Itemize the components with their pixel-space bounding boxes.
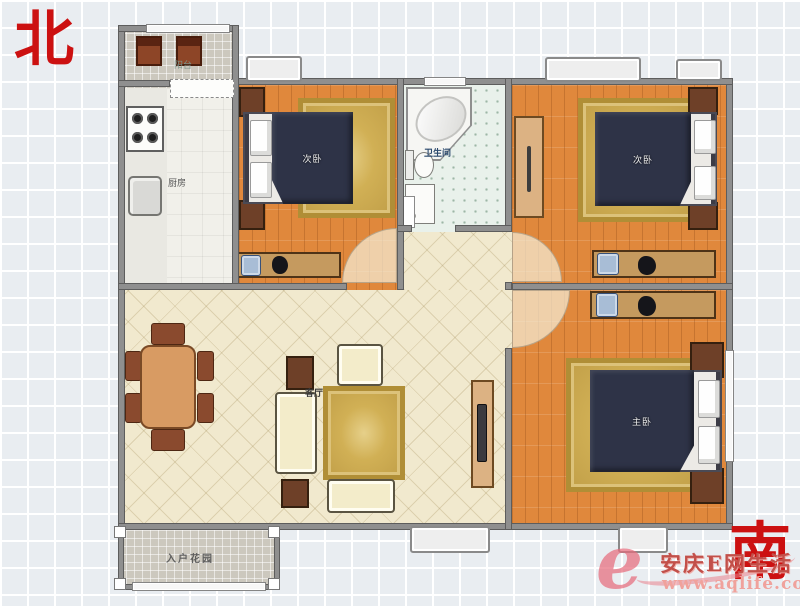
bed-pillow	[250, 120, 272, 156]
kitchen-sink	[128, 176, 162, 216]
garden-post	[268, 526, 280, 538]
floorplan-page: { "compass": { "north": "北", "south": "南…	[0, 0, 800, 600]
bed-blanket: 主卧	[590, 370, 694, 472]
balcony-label: 阳台	[174, 58, 192, 71]
stove	[126, 106, 164, 152]
nightstand	[688, 202, 718, 230]
side-table	[286, 356, 314, 390]
window-garden	[132, 582, 266, 591]
bed-blanket: 次卧	[595, 112, 691, 206]
kitchen-label: 厨房	[168, 176, 186, 189]
garden-post	[114, 578, 126, 590]
sofa-three-seat	[275, 392, 317, 474]
bed-pillow	[250, 162, 272, 198]
dining-chair	[151, 323, 185, 345]
desk-chair	[596, 293, 618, 317]
wall-kitchen-living	[118, 283, 347, 290]
nightstand	[239, 200, 265, 230]
wall-bathroom-bottom-a	[397, 225, 412, 232]
bay-window-bedroom-north	[246, 56, 302, 82]
wall-bathroom-bedroom-east	[505, 78, 512, 232]
desk-monitor	[638, 296, 656, 316]
window-master-east	[725, 350, 734, 462]
dining-table	[140, 345, 196, 429]
wall-kitchen-bedroom	[232, 25, 239, 290]
wall-left-outer	[118, 25, 125, 530]
wall-top-outer	[232, 78, 733, 85]
stove-burner	[147, 132, 158, 143]
balcony-plant-pot	[136, 36, 162, 66]
wall-balcony-kitchen	[118, 80, 170, 87]
bay-window-living	[410, 526, 490, 553]
armchair	[337, 344, 383, 386]
master-bedroom-label: 主卧	[632, 415, 652, 428]
bedroom-east-label: 次卧	[633, 153, 653, 166]
living-room-label: 客厅	[305, 386, 323, 399]
wall-bedroom-bathroom	[397, 78, 404, 290]
dining-chair	[151, 429, 185, 451]
wall-bathroom-bottom-b	[455, 225, 512, 232]
bed-pillow	[694, 166, 716, 200]
desk-chair	[597, 253, 619, 275]
wardrobe-handle	[527, 146, 531, 192]
bed-pillow	[698, 426, 720, 464]
wall-living-master	[505, 348, 512, 530]
bed-pillow	[694, 120, 716, 154]
wall-hall-stub	[505, 282, 512, 290]
wall-bedrooms-divider	[512, 283, 733, 290]
side-table	[281, 479, 309, 508]
bedroom-north-label: 次卧	[302, 152, 322, 165]
wardrobe	[514, 116, 544, 218]
bed-headboard	[245, 114, 249, 202]
compass-north: 北	[14, 10, 74, 70]
window-balcony	[146, 24, 230, 33]
dining-chair	[197, 351, 214, 381]
bay-window-top-right	[676, 59, 722, 81]
desk-monitor	[638, 256, 656, 275]
hallway-floor	[404, 232, 512, 290]
desk-monitor	[272, 256, 288, 274]
stove-burner	[147, 113, 158, 124]
garden-post	[268, 578, 280, 590]
toilet-tank	[405, 150, 414, 180]
nightstand	[690, 468, 724, 504]
stove-burner	[132, 113, 143, 124]
watermark-url: www.aqlife.com	[662, 574, 800, 594]
living-rug	[323, 386, 405, 480]
tv	[477, 404, 487, 462]
bed-bedroom-east: 次卧	[595, 112, 717, 206]
bay-window-bedroom-east	[545, 57, 641, 82]
garden-post	[114, 526, 126, 538]
stove-burner	[132, 132, 143, 143]
nightstand	[688, 87, 718, 115]
bed-bedroom-north: 次卧	[243, 112, 353, 204]
garden-label: 入户花园	[166, 550, 214, 565]
bed-pillow	[698, 380, 720, 418]
window-bathroom	[424, 77, 466, 86]
bed-master: 主卧	[590, 370, 722, 472]
desk-chair	[241, 255, 261, 276]
bathroom-label: 卫生间	[424, 146, 451, 159]
sofa-two-seat	[327, 479, 395, 513]
bed-blanket: 次卧	[272, 112, 353, 204]
wall-right-outer	[726, 78, 733, 530]
dining-chair	[197, 393, 214, 423]
kitchen-pass-counter	[170, 79, 234, 98]
